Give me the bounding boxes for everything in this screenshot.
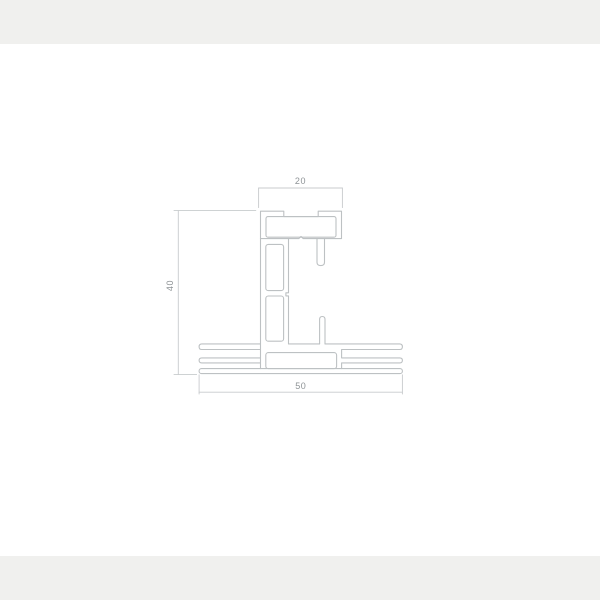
lower-fin [320,317,325,344]
dimension-labels: 20 40 50 [165,176,306,391]
stem-cavity-upper [266,244,284,290]
left-lower-bar [199,358,260,363]
left-wing [199,344,260,350]
page-edge-top [0,0,600,44]
stem-cavity-lower [266,296,284,341]
bottom-flange [199,369,402,374]
top-box-cavity [266,217,336,238]
central-cavity [266,353,337,369]
upper-fin [317,239,325,266]
profile-outline [199,211,402,373]
top-channel-box [261,211,342,238]
dim-top-value: 20 [295,176,306,186]
dim-bottom-value: 50 [295,381,306,391]
stem-right-wall [286,239,289,344]
page-edge-bottom [0,556,600,600]
drawing-canvas: 20 40 50 [0,0,600,600]
dim-left-value: 40 [165,280,175,291]
